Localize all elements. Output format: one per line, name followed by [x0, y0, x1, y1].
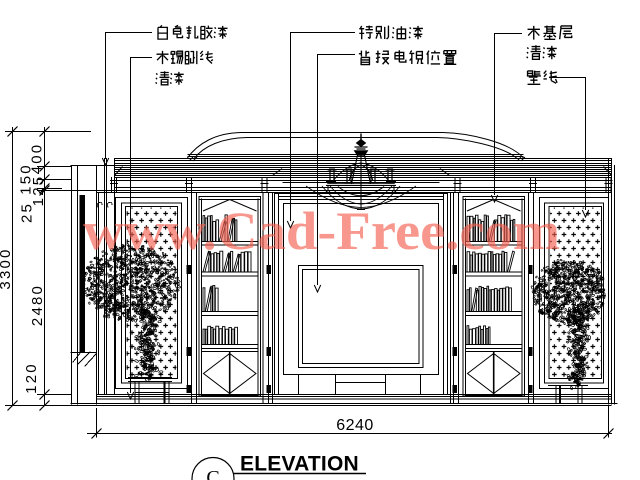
svg-text:25: 25 [19, 202, 36, 223]
svg-text:ELEVATION: ELEVATION [240, 453, 359, 476]
svg-text:www.Cad-Free.com: www.Cad-Free.com [83, 201, 560, 261]
svg-text:120: 120 [23, 362, 40, 394]
svg-text:2480: 2480 [29, 284, 46, 326]
svg-text:C: C [206, 467, 219, 480]
svg-text:6240: 6240 [336, 417, 374, 434]
svg-text:125: 125 [30, 175, 47, 207]
svg-text:3300: 3300 [0, 247, 14, 289]
